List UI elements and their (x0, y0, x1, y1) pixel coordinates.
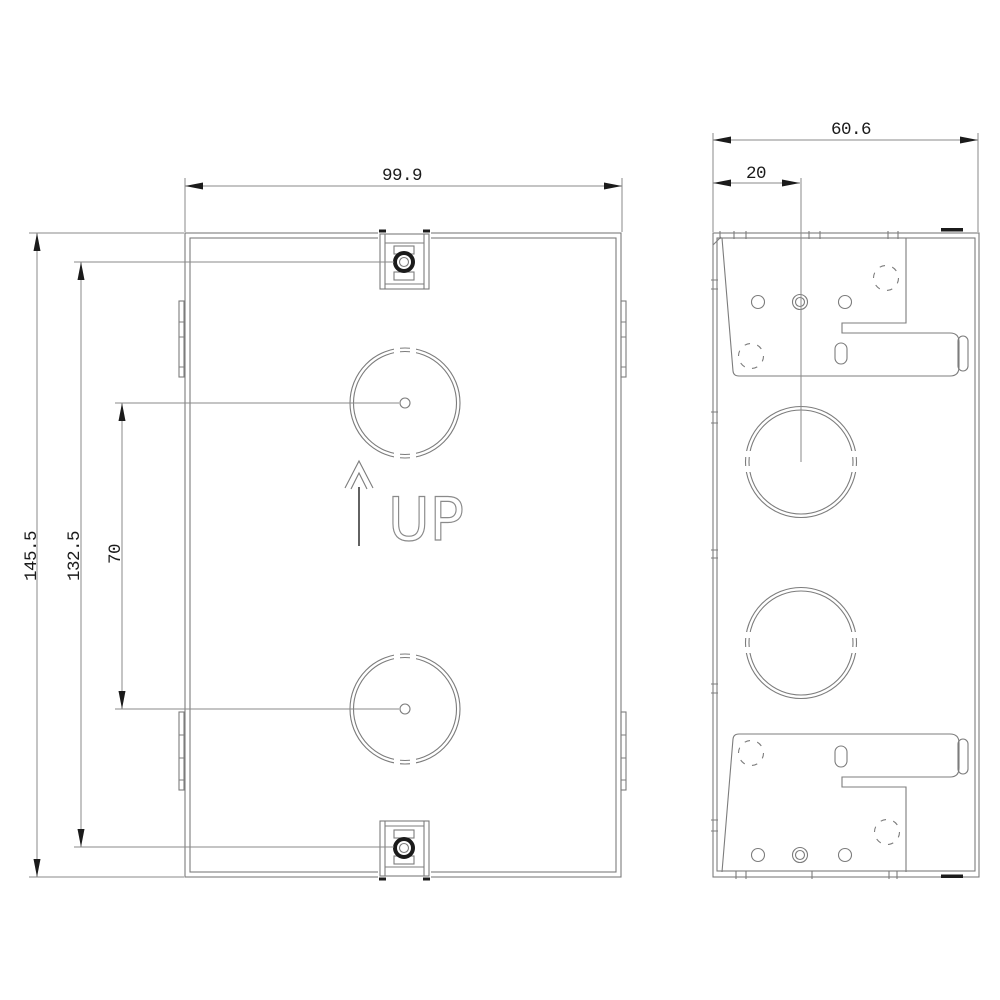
bracket-dimple (875, 820, 900, 845)
front-bottom-clamp (378, 820, 431, 881)
clamp-blank (378, 232, 431, 290)
dim-arrow-icon (782, 180, 800, 187)
up-arrow-icon (345, 461, 373, 488)
dim-arrow-icon (78, 262, 85, 280)
bracket-hole (752, 296, 765, 309)
up-marking: UP (345, 461, 464, 555)
knockout-center-hole (400, 704, 410, 714)
side-view (711, 228, 979, 879)
clamp-edge-mark (423, 878, 430, 881)
front-upper-knockout (350, 342, 460, 461)
knockout-gap (743, 466, 757, 472)
knockout-center-hole (400, 398, 410, 408)
dim-arrow-icon (185, 183, 203, 190)
side-lower-knockout (743, 588, 858, 699)
dim-arrow-icon (604, 183, 622, 190)
front-inner-wall (190, 238, 616, 872)
side-view-dimensions: 60.6 20 (713, 120, 978, 462)
dim-arrow-icon (119, 403, 126, 421)
knockout-gap (410, 648, 416, 661)
dim-arrow-icon (960, 137, 978, 144)
front-top-clamp (378, 230, 431, 291)
clamp-edge-mark (423, 230, 430, 233)
tab-left-lower (179, 712, 184, 790)
tab-ticks (621, 322, 626, 367)
weld-mark-bottom (941, 875, 963, 879)
knockout-gap (394, 754, 400, 767)
dim-arrow-icon (78, 829, 85, 847)
tab-right-lower (621, 712, 626, 790)
bracket-slot (835, 343, 847, 364)
bracket-slot (835, 746, 847, 767)
side-bottom-bracket (722, 734, 968, 872)
clamp-edge-mark (379, 878, 386, 881)
tab-ticks (621, 735, 626, 780)
bracket-center-hole-inner (796, 851, 805, 860)
knockout-inner (749, 591, 853, 695)
bracket-outline (722, 734, 959, 872)
side-top-bracket (722, 238, 968, 376)
dim-screw-spacing-label: 132.5 (65, 531, 85, 581)
dim-knockout-spacing-label: 70 (106, 544, 126, 564)
knockout-gap (844, 466, 858, 472)
tab-right-upper (621, 301, 626, 377)
drawing-canvas: UP 99.9 145.5 132.5 70 (0, 0, 1000, 1000)
knockout-gap (844, 632, 858, 638)
bracket-center-hole-inner (796, 298, 805, 307)
knockout-gap (743, 647, 757, 653)
weld-mark-top (941, 228, 963, 232)
front-view: UP (179, 230, 626, 881)
dim-front-width-label: 99.9 (382, 166, 422, 186)
dim-arrow-icon (713, 180, 731, 187)
dim-arrow-icon (119, 691, 126, 709)
bracket-dimple (874, 266, 899, 291)
bottom-edge-ticks (736, 871, 897, 879)
clamp-edge-mark (379, 230, 386, 233)
bracket-dimple (739, 741, 764, 766)
up-label: UP (388, 485, 464, 555)
knockout-outer (746, 588, 857, 699)
bracket-center-hole-outer (793, 848, 808, 863)
knockout-gap (410, 754, 416, 767)
clamp-blank (378, 820, 431, 878)
tab-ticks (179, 322, 184, 367)
up-arrow-icon (351, 473, 367, 489)
bracket-hole (839, 849, 852, 862)
knockout-gap (743, 451, 757, 457)
bracket-dimple (739, 344, 764, 369)
dim-side-depth-label: 60.6 (831, 120, 871, 140)
cad-drawing: UP 99.9 145.5 132.5 70 (0, 0, 1000, 1000)
knockout-gap (410, 342, 416, 355)
knockout-gap (394, 648, 400, 661)
bracket-hole (752, 849, 765, 862)
dim-arrow-icon (34, 233, 41, 251)
front-lower-knockout (350, 648, 460, 767)
dim-arrow-icon (34, 859, 41, 877)
dimension-line-width (185, 178, 622, 232)
dim-knockout-offset-label: 20 (746, 164, 766, 184)
bracket-center-hole-outer (793, 295, 808, 310)
dim-front-height-label: 145.5 (22, 531, 42, 581)
front-outer-wall (185, 233, 621, 877)
front-view-dimensions: 99.9 145.5 132.5 70 (22, 166, 622, 877)
knockout-gap (844, 451, 858, 457)
knockout-gap (394, 342, 400, 355)
tab-left-upper (179, 301, 184, 377)
knockout-gap (844, 647, 858, 653)
bracket-hole (839, 296, 852, 309)
knockout-gap (743, 632, 757, 638)
tab-ticks (179, 735, 184, 780)
side-outer-wall (713, 233, 979, 877)
dim-arrow-icon (713, 137, 731, 144)
knockout-gap (410, 448, 416, 461)
knockout-gap (394, 448, 400, 461)
